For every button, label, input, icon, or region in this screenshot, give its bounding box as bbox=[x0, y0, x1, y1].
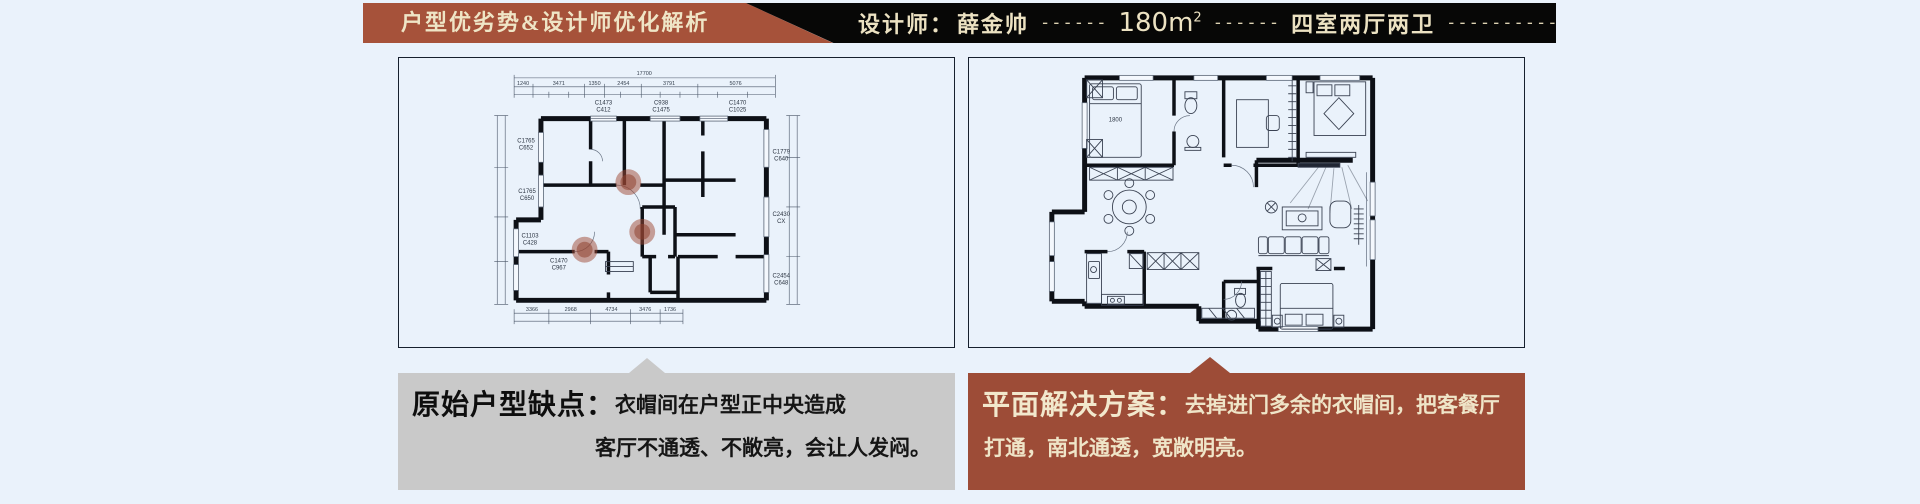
banner-dash-2: ------ bbox=[1213, 13, 1280, 33]
area-superscript: 2 bbox=[1193, 10, 1201, 25]
banner-title: 户型优劣势&设计师优化解析 bbox=[401, 3, 709, 43]
rooms-text: 四室两厅两卫 bbox=[1291, 7, 1435, 39]
svg-text:C650: C650 bbox=[520, 196, 535, 202]
svg-text:2968: 2968 bbox=[565, 307, 577, 313]
living-room-furniture bbox=[1258, 163, 1363, 270]
svg-text:C1473: C1473 bbox=[595, 101, 613, 107]
defects-line1: 衣帽间在户型正中央造成 bbox=[615, 394, 846, 417]
svg-text:CX: CX bbox=[777, 219, 785, 225]
svg-text:5076: 5076 bbox=[730, 81, 742, 87]
interior-walls bbox=[516, 119, 766, 301]
kitchen-furniture bbox=[1087, 254, 1144, 306]
svg-text:C652: C652 bbox=[519, 145, 533, 151]
svg-text:C640: C640 bbox=[774, 156, 789, 162]
svg-text:C1025: C1025 bbox=[729, 108, 747, 114]
door-swings bbox=[1107, 116, 1253, 300]
hall-closet bbox=[1147, 253, 1199, 270]
designer-label: 设计师： bbox=[858, 7, 954, 39]
svg-text:C1779: C1779 bbox=[773, 149, 791, 155]
svg-text:1350: 1350 bbox=[588, 81, 600, 87]
optimized-floorplan-svg: 1800 bbox=[969, 58, 1524, 347]
svg-text:3791: 3791 bbox=[663, 81, 675, 87]
svg-text:2454: 2454 bbox=[617, 81, 629, 87]
svg-text:17700: 17700 bbox=[637, 71, 652, 77]
svg-text:C1475: C1475 bbox=[652, 108, 670, 114]
bed-dimension-label: 1800 bbox=[1109, 118, 1123, 124]
svg-text:C967: C967 bbox=[552, 266, 566, 272]
designer-name: 薛金帅 bbox=[957, 7, 1029, 39]
svg-text:3366: 3366 bbox=[526, 307, 538, 313]
svg-text:C1765: C1765 bbox=[518, 189, 536, 195]
defects-title: 原始户型缺点： bbox=[412, 390, 615, 421]
svg-text:3471: 3471 bbox=[553, 81, 565, 87]
original-floorplan-svg: 17700 1240 3471 1350 2454 3791 5076 3366… bbox=[399, 58, 954, 347]
outer-walls bbox=[1052, 78, 1373, 329]
dining-set bbox=[1104, 179, 1155, 236]
svg-text:C1765: C1765 bbox=[517, 138, 535, 144]
svg-text:1736: 1736 bbox=[664, 307, 676, 313]
banner-black-segment: 设计师： 薛金帅 ------ 180m2 ------ 四室两厅两卫 ----… bbox=[746, 3, 1556, 43]
svg-text:3476: 3476 bbox=[639, 307, 651, 313]
banner-dash-3: -------------------- bbox=[1446, 13, 1671, 33]
solution-line2: 打通，南北通透，宽敞明亮。 bbox=[984, 432, 1511, 462]
svg-text:C1470: C1470 bbox=[550, 259, 568, 265]
study-furniture bbox=[1237, 80, 1297, 161]
solution-title: 平面解决方案： bbox=[982, 390, 1185, 421]
svg-text:C1103: C1103 bbox=[521, 234, 539, 240]
bathroom-top-furniture bbox=[1185, 92, 1201, 151]
svg-text:4734: 4734 bbox=[605, 307, 617, 313]
bedroom-bottomright-furniture bbox=[1260, 272, 1343, 330]
solution-line1: 去掉进门多余的衣帽间，把客餐厅 bbox=[1185, 394, 1500, 417]
original-defects-note: 原始户型缺点：衣帽间在户型正中央造成 客厅不通透、不敞亮，会让人发闷。 bbox=[398, 373, 955, 490]
svg-text:C412: C412 bbox=[596, 108, 610, 114]
svg-text:C938: C938 bbox=[654, 101, 669, 107]
infographic-canvas: 户型优劣势&设计师优化解析 设计师： 薛金帅 ------ 180m2 ----… bbox=[0, 0, 1920, 504]
area-value: 180m2 bbox=[1118, 8, 1201, 38]
svg-text:1240: 1240 bbox=[517, 81, 529, 87]
svg-text:C648: C648 bbox=[774, 280, 789, 286]
optimized-plan-panel: 1800 bbox=[968, 57, 1525, 348]
solution-note: 平面解决方案：去掉进门多余的衣帽间，把客餐厅 打通，南北通透，宽敞明亮。 bbox=[968, 373, 1525, 490]
entry-cabinet bbox=[1202, 308, 1255, 318]
original-plan-panel: 17700 1240 3471 1350 2454 3791 5076 3366… bbox=[398, 57, 955, 348]
svg-text:C2454: C2454 bbox=[773, 273, 791, 279]
banner-dash-1: ------ bbox=[1040, 13, 1107, 33]
gray-pointer-triangle bbox=[629, 358, 665, 373]
master-bedroom-furniture bbox=[1290, 82, 1367, 213]
defects-line2: 客厅不通透、不敞亮，会让人发闷。 bbox=[595, 432, 941, 462]
window-code-labels: C1473 C412 C938 C1475 C1470 C1025 C1765 … bbox=[517, 101, 790, 287]
red-pointer-triangle bbox=[1190, 357, 1230, 373]
windows bbox=[1049, 75, 1375, 331]
svg-text:C2430: C2430 bbox=[773, 212, 791, 218]
svg-text:C1470: C1470 bbox=[729, 101, 747, 107]
svg-text:C428: C428 bbox=[523, 241, 538, 247]
